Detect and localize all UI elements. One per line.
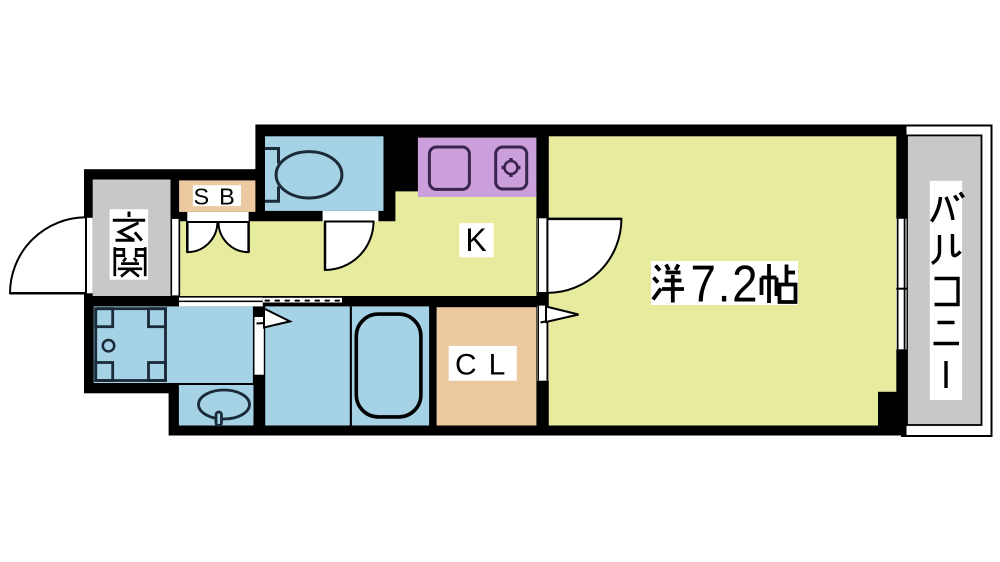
svg-text:SB: SB [194,183,245,209]
svg-text:CL: CL [455,349,517,382]
svg-text:7.2: 7.2 [691,256,760,313]
svg-text:K: K [465,222,486,258]
